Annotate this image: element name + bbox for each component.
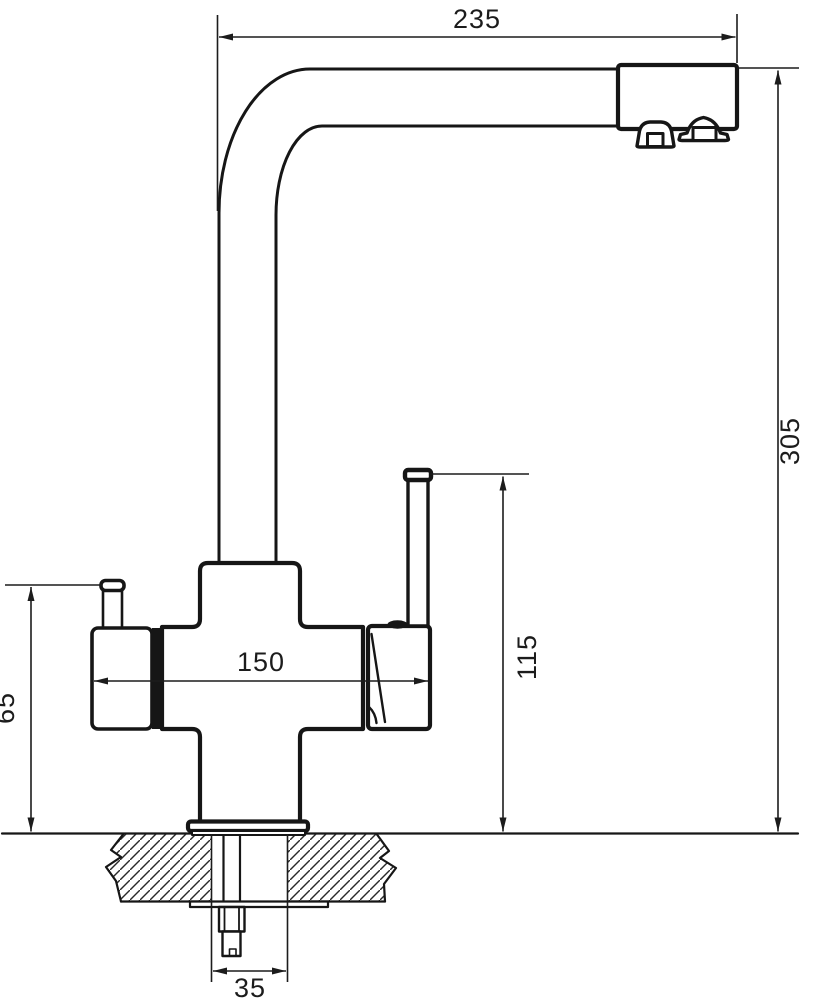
filter-knob-stem-cap xyxy=(101,581,124,591)
dim-235-label: 235 xyxy=(453,4,501,34)
mixer-lever-rod xyxy=(408,474,428,626)
mixer-lever-cap xyxy=(405,470,431,480)
spout-head xyxy=(618,65,737,129)
drawing-svg: 235 305 150 115 65 3 xyxy=(0,0,824,1000)
filter-knob xyxy=(92,628,152,729)
valve-cross-body xyxy=(162,563,363,822)
dim-115-label: 115 xyxy=(512,634,542,680)
dim-lever-height: 115 xyxy=(430,474,542,832)
dim-65-label: 65 xyxy=(0,692,20,724)
dim-overall-height: 305 xyxy=(737,68,805,832)
dim-150-label: 150 xyxy=(237,647,285,677)
faucet-body xyxy=(92,65,737,835)
countertop-slab-right-hatch xyxy=(288,835,397,902)
aerator-small-outlet xyxy=(648,134,664,147)
dim-305-label: 305 xyxy=(775,417,805,465)
filter-knob-ring xyxy=(152,628,163,729)
base-flange xyxy=(188,822,308,832)
countertop-section xyxy=(2,834,798,902)
spout-inner-profile xyxy=(276,126,618,564)
mount-nut xyxy=(219,907,245,932)
faucet-dimension-drawing: 235 305 150 115 65 3 xyxy=(0,0,824,1000)
aerator-large-outlet xyxy=(693,128,716,141)
dim-knob-height: 65 xyxy=(0,585,102,832)
mixer-lever-pivot xyxy=(388,620,408,628)
stud-slot xyxy=(230,949,237,956)
dim-35-label: 35 xyxy=(234,973,266,1000)
countertop-slab-left-hatch xyxy=(106,835,212,902)
